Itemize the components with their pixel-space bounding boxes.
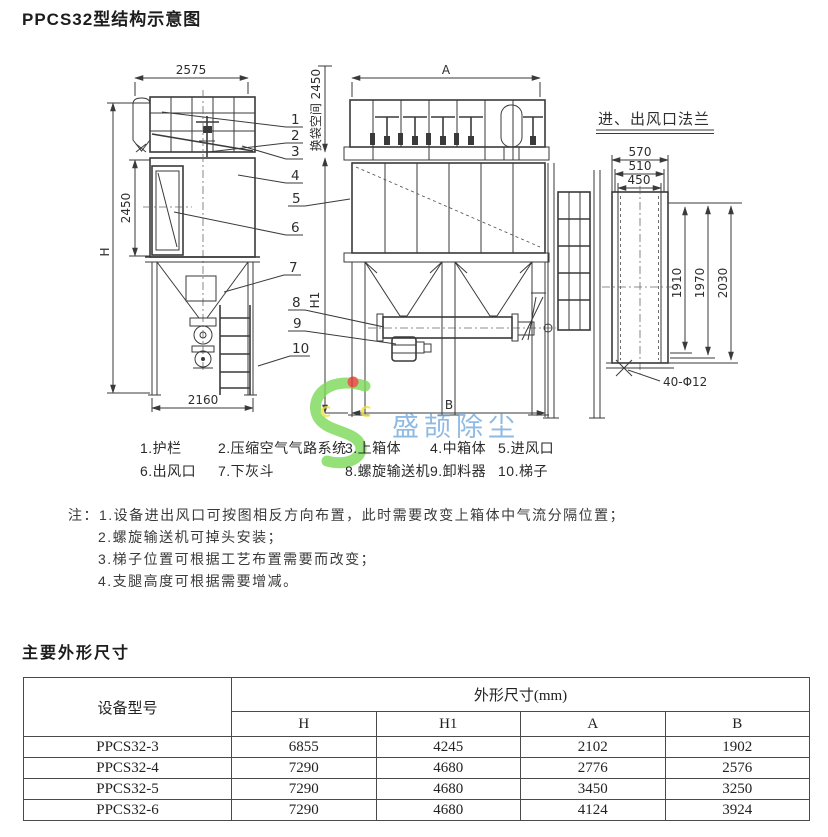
callout-5: 5 xyxy=(292,191,301,207)
legend-item-4: 4.中箱体 xyxy=(430,438,486,458)
flange-title: 进、出风口法兰 xyxy=(598,110,710,128)
discharge-unit xyxy=(392,337,431,361)
legend-item-1: 1.护栏 xyxy=(140,438,182,458)
table-row: PPCS32-3 6855 4245 2102 1902 xyxy=(24,737,810,758)
note-line-4: 4.支腿高度可根据需要增减。 xyxy=(68,570,625,592)
screw-conveyor xyxy=(368,293,556,341)
inlet-duct xyxy=(543,163,605,418)
callout-10: 10 xyxy=(292,341,309,357)
legend-item-6: 6.出风口 xyxy=(140,461,196,481)
front-dim-h1: H1 xyxy=(308,292,322,309)
side-dim-h: H xyxy=(98,247,112,256)
table-row: PPCS32-6 7290 4680 4124 3924 xyxy=(24,800,810,821)
model-cell: PPCS32-5 xyxy=(24,779,232,800)
callout-9: 9 xyxy=(293,316,302,332)
watermark-red-dot xyxy=(348,377,359,388)
sub-header-a: A xyxy=(521,712,666,737)
flange-dim-2030: 2030 xyxy=(716,268,730,299)
front-dim-b: B xyxy=(445,398,453,412)
flange-dim-450: 450 xyxy=(628,173,651,187)
dimensions-table: 设备型号 外形尺寸(mm) H H1 A B PPCS32-3 6855 424… xyxy=(23,677,810,821)
legend-item-9: 9.卸料器 xyxy=(430,461,486,481)
table-row: PPCS32-5 7290 4680 3450 3250 xyxy=(24,779,810,800)
notes-block: 注：1.设备进出风口可按图相反方向布置，此时需要改变上箱体中气流分隔位置； 2.… xyxy=(68,504,625,592)
model-cell: PPCS32-3 xyxy=(24,737,232,758)
catalog-page: PPCS32型结构示意图 2575 H xyxy=(0,0,828,837)
sub-header-h1: H1 xyxy=(376,712,521,737)
callout-4: 4 xyxy=(291,168,300,184)
table-row: PPCS32-4 7290 4680 2776 2576 xyxy=(24,758,810,779)
front-dim-a: A xyxy=(442,63,451,77)
note-line-1: 注：1.设备进出风口可按图相反方向布置，此时需要改变上箱体中气流分隔位置； xyxy=(68,504,625,526)
callout-2: 2 xyxy=(291,128,300,144)
legend-item-7: 7.下灰斗 xyxy=(218,461,274,481)
legend-item-5: 5.进风口 xyxy=(498,438,554,458)
flange-dim-510: 510 xyxy=(629,159,652,173)
side-view: 2575 H xyxy=(98,63,260,412)
legend-item-10: 10.梯子 xyxy=(498,461,548,481)
callout-3: 3 xyxy=(291,144,300,160)
model-cell: PPCS32-4 xyxy=(24,758,232,779)
callout-1: 1 xyxy=(291,112,300,128)
front-dim-bag-space: 换袋空间 2450 xyxy=(309,69,323,151)
flange-view: 进、出风口法兰 570 510 450 xyxy=(596,110,742,389)
section-title: 主要外形尺寸 xyxy=(22,639,130,663)
flange-holes-label: 40-Φ12 xyxy=(663,375,707,389)
note-line-2: 2.螺旋输送机可掉头安装； xyxy=(68,526,625,548)
note-line-3: 3.梯子位置可根据工艺布置需要而改变； xyxy=(68,548,625,570)
flange-dim-1970: 1970 xyxy=(693,268,707,299)
col-group-header: 外形尺寸(mm) xyxy=(232,678,810,712)
model-cell: PPCS32-6 xyxy=(24,800,232,821)
callout-7: 7 xyxy=(289,260,298,276)
sub-header-b: B xyxy=(665,712,810,737)
sub-header-h: H xyxy=(232,712,377,737)
flange-dim-1910: 1910 xyxy=(670,268,684,299)
col-header-model: 设备型号 xyxy=(24,678,232,737)
callout-8: 8 xyxy=(292,295,301,311)
notes-prefix: 注： xyxy=(68,507,99,523)
watermark-letters: C C xyxy=(320,403,383,421)
legend-item-8: 8.螺旋输送机 xyxy=(345,461,430,481)
side-dim-top: 2575 xyxy=(176,63,207,77)
front-view: A xyxy=(308,63,605,418)
legend-item-3: 3.上箱体 xyxy=(345,438,401,458)
flange-dim-570: 570 xyxy=(629,145,652,159)
legend-item-2: 2.压缩空气气路系统 xyxy=(218,438,347,458)
side-dim-base: 2160 xyxy=(188,393,219,407)
callout-6: 6 xyxy=(291,220,300,236)
side-dim-box: 2450 xyxy=(119,193,133,224)
